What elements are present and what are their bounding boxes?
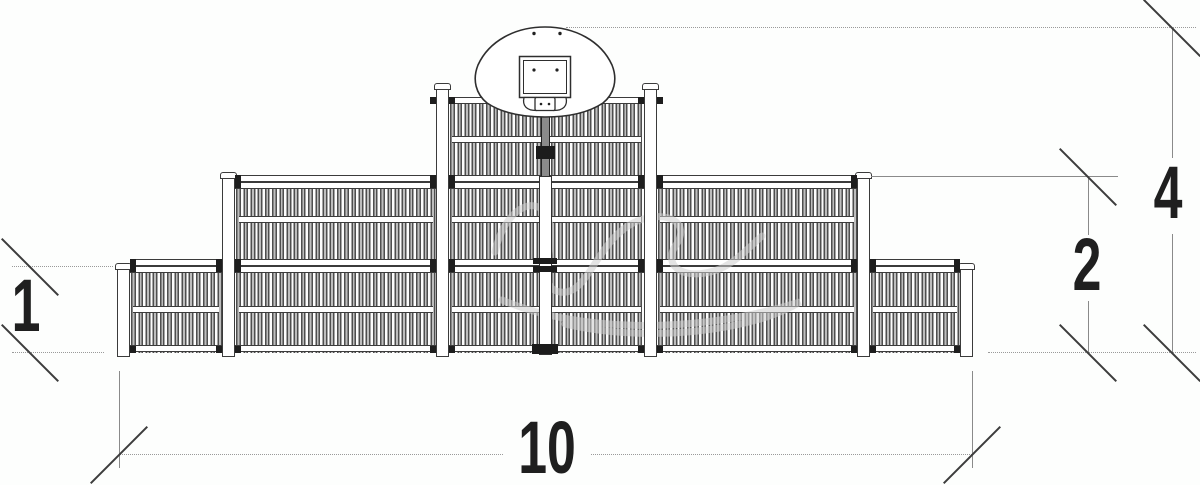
basketball-backboard-icon — [0, 0, 1200, 485]
extension-line-low-ground — [12, 352, 104, 353]
dimension-height-mid: 2 — [1073, 228, 1102, 302]
dim-line-width-a — [119, 454, 503, 455]
dimension-width-total: 10 — [518, 411, 576, 485]
dim-line-width-b — [591, 454, 972, 455]
extension-line-mid-top — [871, 176, 1118, 177]
extension-line-ground-right — [988, 352, 1196, 353]
fence-elevation-drawing: 1 2 4 10 — [0, 0, 1200, 485]
dim-line-total-a — [1172, 28, 1173, 158]
extension-line-top — [566, 27, 1196, 28]
dimension-height-low: 1 — [12, 269, 41, 343]
dimension-height-total: 4 — [1154, 156, 1183, 230]
dim-line-mid-b — [1088, 301, 1089, 353]
dim-line-total-b — [1172, 234, 1173, 353]
